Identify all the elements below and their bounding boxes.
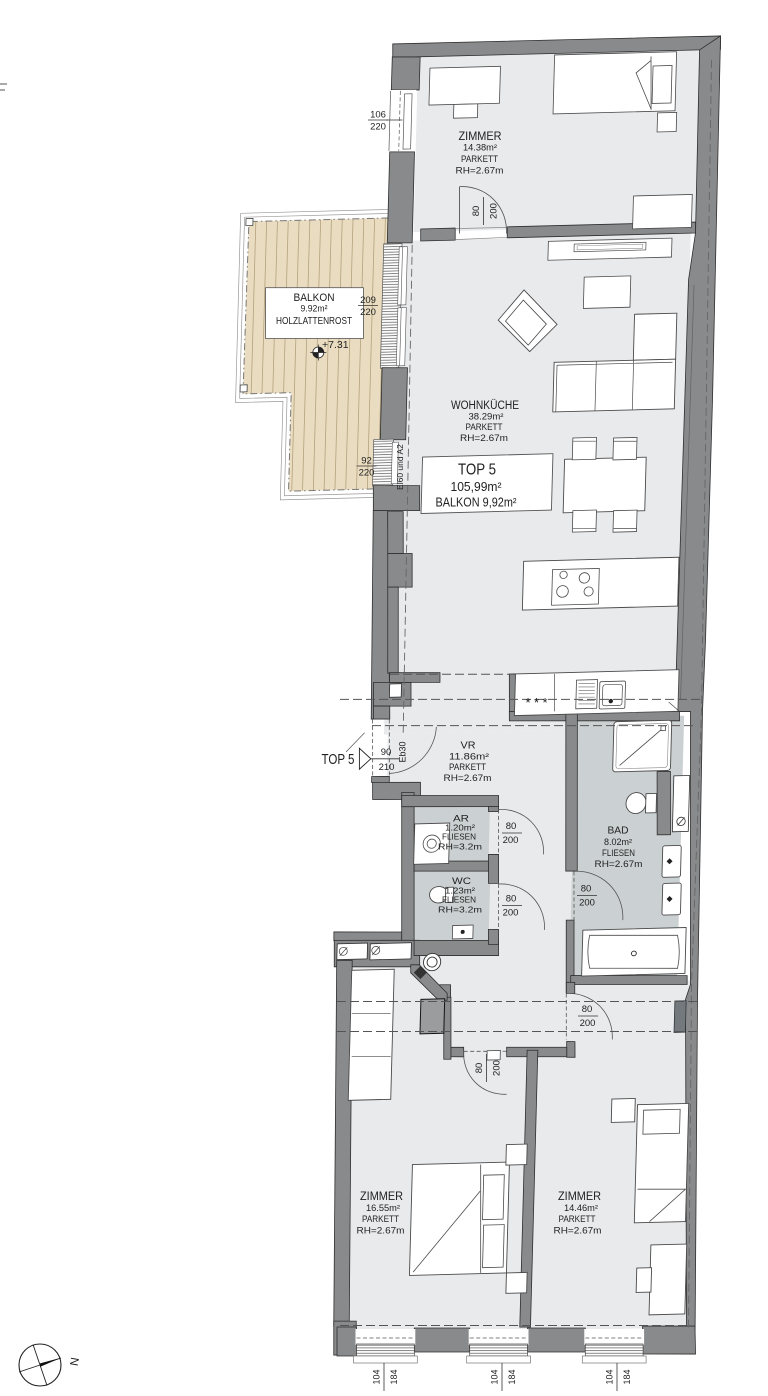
svg-text:Eb30: Eb30: [398, 741, 408, 762]
svg-text:BALKON: BALKON: [294, 292, 335, 304]
svg-text:200: 200: [489, 203, 500, 219]
svg-text:90: 90: [381, 747, 392, 758]
svg-text:VR: VR: [461, 740, 476, 752]
svg-text:184: 184: [622, 1369, 632, 1384]
svg-text:PARKETT: PARKETT: [461, 154, 498, 164]
svg-text:200: 200: [580, 1018, 596, 1029]
svg-text:80: 80: [506, 821, 517, 832]
svg-text:ZIMMER: ZIMMER: [360, 1191, 403, 1203]
svg-text:*: *: [534, 695, 539, 710]
svg-text:8.02m²: 8.02m²: [604, 837, 632, 847]
svg-text:RH=2.67m: RH=2.67m: [456, 166, 504, 176]
svg-text:80: 80: [471, 206, 482, 217]
svg-text:PARKETT: PARKETT: [449, 762, 486, 772]
svg-text:11.86m²: 11.86m²: [449, 752, 489, 762]
svg-text:PARKETT: PARKETT: [466, 422, 503, 432]
svg-text:80: 80: [581, 884, 592, 895]
svg-text:210: 210: [379, 762, 395, 773]
svg-text:TOP 5: TOP 5: [322, 752, 355, 768]
svg-text:220: 220: [359, 468, 375, 479]
svg-text:14.38m²: 14.38m²: [463, 143, 497, 153]
svg-text:ZIMMER: ZIMMER: [558, 1191, 601, 1203]
svg-text:PARKETT: PARKETT: [559, 1214, 596, 1224]
svg-text:El60 und A2: El60 und A2: [395, 444, 405, 490]
svg-text:RH=2.67m: RH=2.67m: [554, 1226, 602, 1236]
svg-text:FLIESEN: FLIESEN: [442, 832, 476, 842]
svg-text:106: 106: [370, 110, 386, 121]
svg-text:RH=2.67m: RH=2.67m: [444, 773, 492, 783]
svg-text:105,99m²: 105,99m²: [451, 480, 502, 494]
svg-text:FLIESEN: FLIESEN: [602, 848, 635, 858]
svg-text:RH=2.67m: RH=2.67m: [357, 1226, 405, 1236]
svg-text:TOP 5: TOP 5: [458, 462, 496, 479]
svg-text:HOLZLATTENROST: HOLZLATTENROST: [276, 315, 352, 327]
svg-text:209: 209: [360, 295, 376, 306]
svg-text:RH=3.2m: RH=3.2m: [438, 905, 482, 915]
svg-text:BAD: BAD: [608, 825, 629, 837]
svg-text:92: 92: [361, 456, 372, 467]
svg-text:16.55m²: 16.55m²: [366, 1203, 400, 1213]
svg-text:184: 184: [507, 1369, 517, 1384]
svg-text:+7.31: +7.31: [322, 339, 349, 351]
svg-text:80: 80: [582, 1004, 593, 1015]
svg-text:FLIESEN: FLIESEN: [442, 895, 476, 905]
svg-text:38.29m²: 38.29m²: [469, 412, 504, 422]
svg-text:104: 104: [605, 1369, 615, 1384]
svg-text:9.92m²: 9.92m²: [301, 304, 328, 315]
svg-text:RH=3.2m: RH=3.2m: [438, 842, 482, 852]
svg-text:RH=2.67m: RH=2.67m: [595, 859, 643, 869]
svg-text:RH=2.67m: RH=2.67m: [460, 433, 508, 443]
svg-text:14.46m²: 14.46m²: [564, 1203, 598, 1213]
svg-text:104: 104: [490, 1369, 500, 1384]
svg-text:PARKETT: PARKETT: [362, 1214, 399, 1224]
svg-text:220: 220: [370, 122, 386, 133]
svg-text:80: 80: [474, 1063, 485, 1074]
svg-text:200: 200: [503, 835, 519, 846]
svg-text:80: 80: [506, 894, 517, 905]
svg-text:200: 200: [503, 908, 519, 919]
svg-text:200: 200: [579, 898, 595, 909]
svg-text:*: *: [542, 695, 547, 710]
svg-text:ZIMMER: ZIMMER: [459, 131, 502, 143]
svg-text:104: 104: [372, 1369, 382, 1384]
svg-text:184: 184: [389, 1369, 399, 1384]
svg-text:WOHNKÜCHE: WOHNKÜCHE: [451, 400, 519, 412]
svg-text:BALKON 9,92m²: BALKON 9,92m²: [436, 496, 517, 510]
svg-text:*: *: [525, 695, 530, 710]
svg-text:200: 200: [492, 1060, 503, 1076]
svg-text:220: 220: [360, 307, 376, 318]
